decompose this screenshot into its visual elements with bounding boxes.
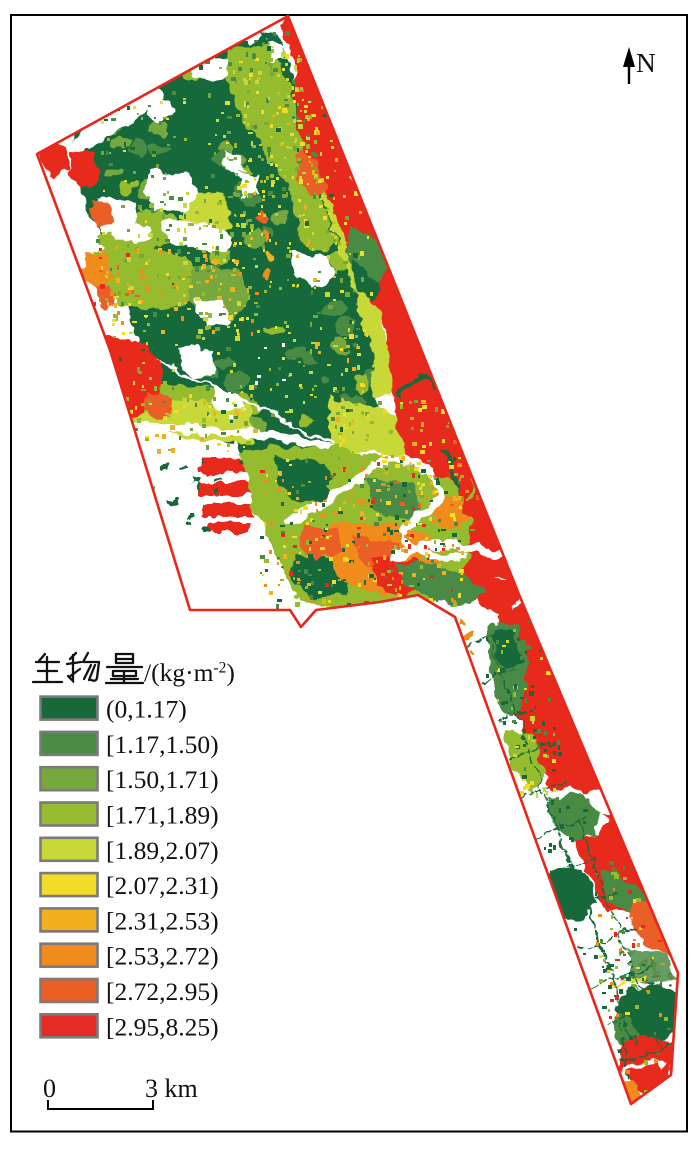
svg-text:(0,1.17): (0,1.17)	[106, 695, 187, 724]
svg-text:[2.31,2.53): [2.31,2.53)	[106, 906, 219, 935]
svg-text:N: N	[636, 47, 656, 78]
svg-text:[2.72,2.95): [2.72,2.95)	[106, 977, 219, 1006]
svg-text:[1.50,1.71): [1.50,1.71)	[106, 765, 219, 794]
svg-text:[1.71,1.89): [1.71,1.89)	[106, 801, 219, 830]
svg-text:[2.53,2.72): [2.53,2.72)	[106, 942, 219, 971]
svg-text:0: 0	[43, 1074, 56, 1103]
svg-text:[1.89,2.07): [1.89,2.07)	[106, 836, 219, 865]
svg-text:[1.17,1.50): [1.17,1.50)	[106, 730, 219, 759]
svg-text:[2.07,2.31): [2.07,2.31)	[106, 871, 219, 900]
svg-text:3 km: 3 km	[145, 1074, 198, 1103]
svg-text:[2.95,8.25): [2.95,8.25)	[106, 1012, 219, 1041]
